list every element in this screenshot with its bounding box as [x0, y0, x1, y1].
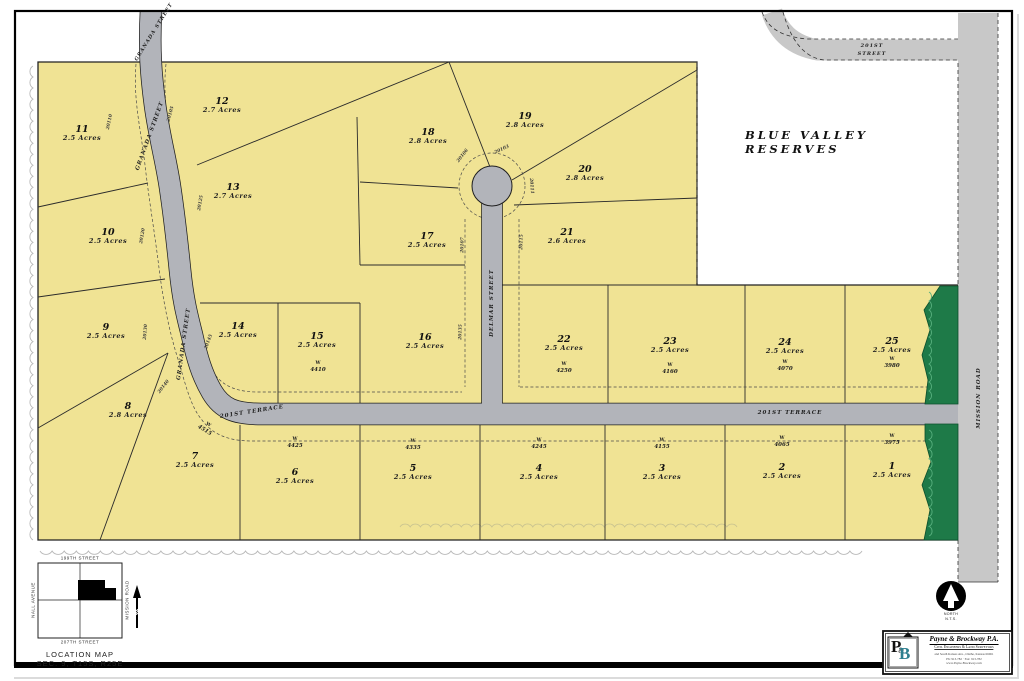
- plat-drawing: [0, 0, 1024, 681]
- sheet-frame-bottom: [14, 662, 1013, 668]
- mission-road: [958, 13, 998, 582]
- north-arrow: [936, 581, 966, 611]
- cul-de-sac: [472, 166, 512, 206]
- location-map: [38, 563, 141, 638]
- tree-line-bottom: [40, 551, 862, 554]
- stamp-box: [883, 631, 1012, 674]
- plat-map-sheet: BLUE VALLEY RESERVES 199TH STREET 207TH …: [0, 0, 1024, 681]
- tree-line-left: [30, 66, 33, 540]
- 201st-street-road: [772, 12, 959, 50]
- location-map-north-arrow: [133, 585, 141, 628]
- green-buffer-south: [922, 424, 958, 540]
